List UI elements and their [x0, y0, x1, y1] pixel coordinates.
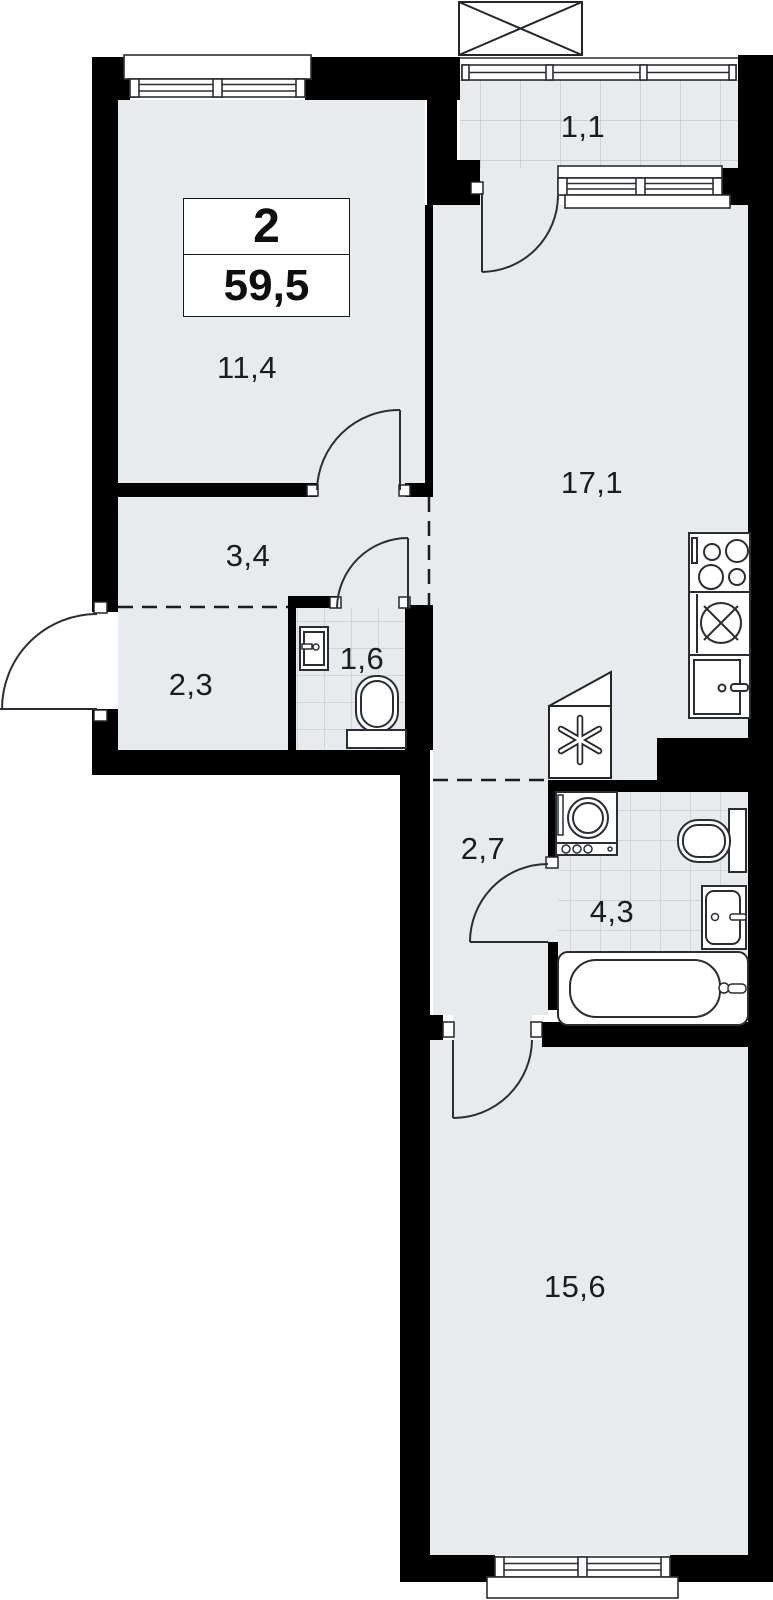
- room-area-label-wc: 1,6: [340, 641, 385, 677]
- plan-info-box: 2 59,5: [183, 198, 350, 317]
- room-area-label-living-kitchen: 17,1: [561, 465, 623, 501]
- wc-sink-icon: [300, 627, 328, 670]
- room-area-label-bathroom: 4,3: [590, 894, 635, 930]
- floor-plan-drawing: [0, 0, 773, 1600]
- room-area-label-corridor: 2,7: [461, 831, 506, 867]
- room-area-label-bedroom: 11,4: [217, 350, 277, 386]
- rooms-count-value: 2: [184, 199, 349, 255]
- room-area-label-balcony: 1,1: [561, 109, 606, 145]
- bathroom-sink-icon: [702, 886, 746, 949]
- stove-icon: [689, 533, 750, 592]
- window-balcony: [558, 166, 730, 208]
- floor-plan: 11,4 3,4 2,3 1,6 17,1 2,7 4,3 15,6 1,1 2…: [0, 0, 773, 1600]
- bathtub-icon: [558, 952, 748, 1025]
- kitchen-sink-icon: [689, 592, 750, 655]
- kitchen-cabinet-icon: [689, 655, 750, 718]
- kitchen-block: [689, 533, 750, 718]
- entrance-door-arc-icon: [0, 614, 97, 709]
- washing-machine-icon: [556, 792, 617, 855]
- window-bedroom2: [487, 1555, 678, 1598]
- shaft-cross-icon: [459, 2, 582, 55]
- room-area-label-hall: 3,4: [226, 538, 271, 574]
- room-area-label-bedroom2: 15,6: [544, 1269, 606, 1305]
- window-bedroom: [124, 55, 311, 100]
- balcony-railing-icon: [460, 58, 738, 80]
- room-area-label-entry: 2,3: [169, 667, 214, 703]
- total-area-value: 59,5: [184, 255, 349, 316]
